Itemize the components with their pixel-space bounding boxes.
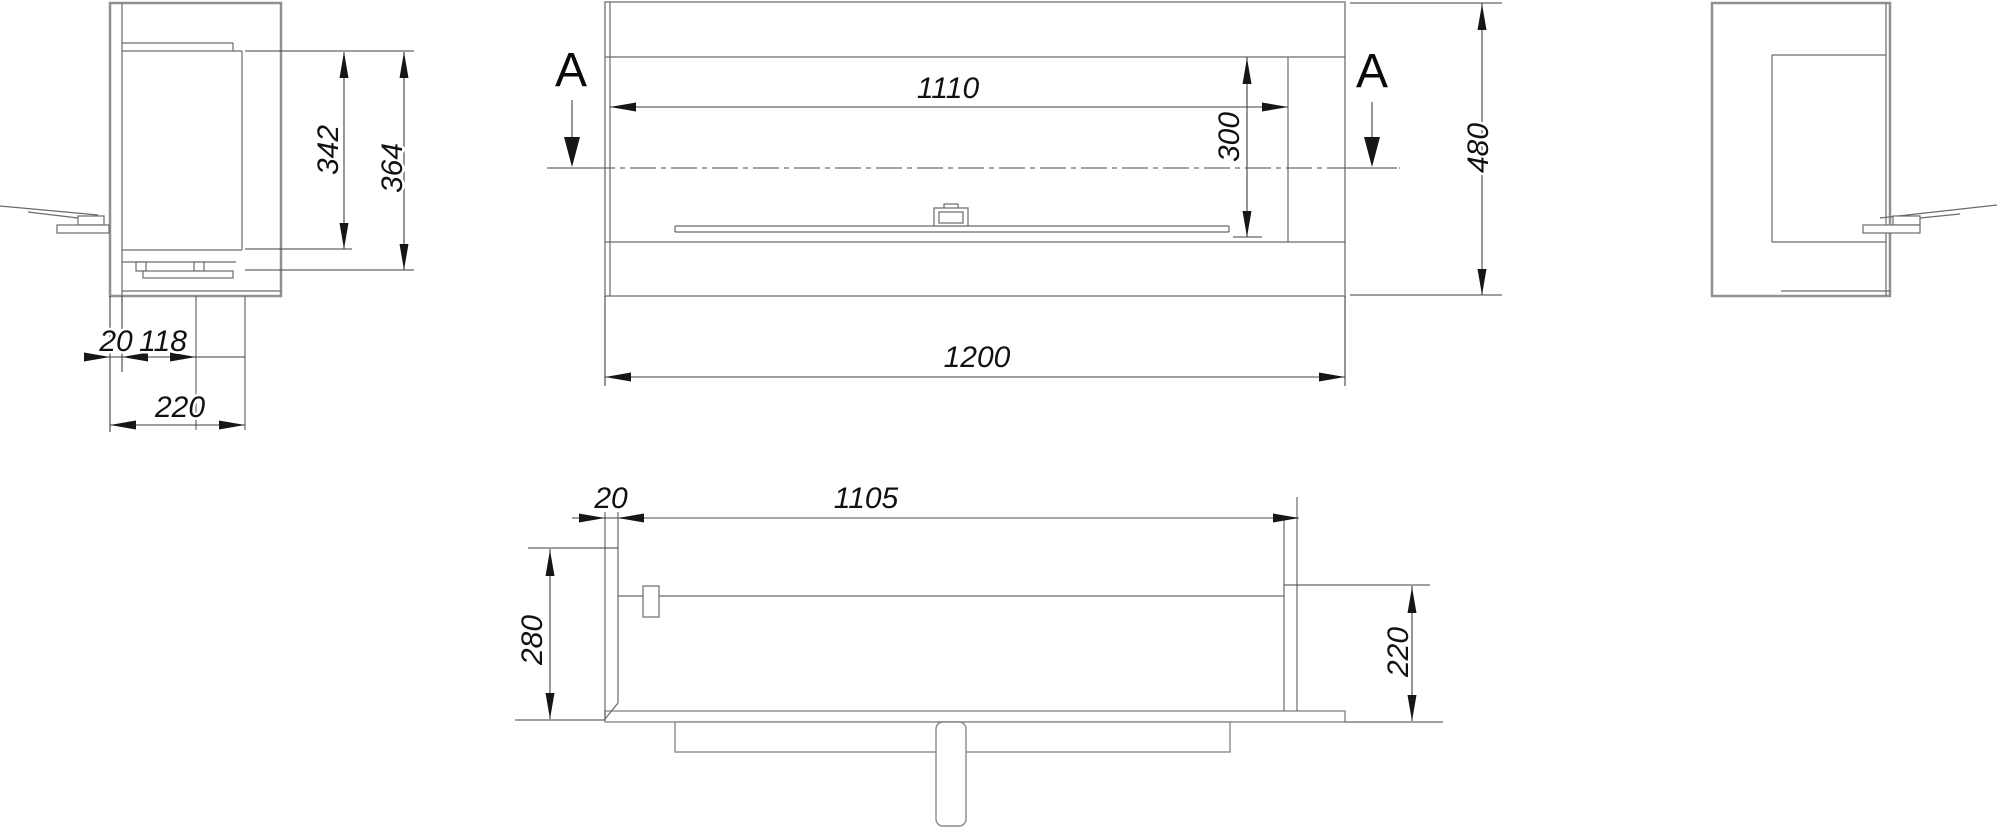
dim-total-width: 1200 [605,296,1345,386]
body-outline [1712,3,1890,296]
dim-label-300: 300 [1213,112,1246,162]
dim-label-20-top: 20 [593,482,628,515]
dim-label-1110: 1110 [917,72,980,105]
drain-pipe [936,722,966,826]
latch-bar [1863,225,1920,233]
dim-label-118: 118 [139,325,187,358]
side-view-right [1712,3,1997,296]
arrowhead [546,550,555,576]
igniter-port [643,586,659,617]
dim-opening-width: 1110 [610,72,1288,112]
dim-label-342: 342 [312,125,345,175]
dim-opening-height: 300 [1213,57,1262,237]
dim-label-1105: 1105 [834,482,899,515]
dim-label-1200: 1200 [944,341,1011,374]
arrowhead [1262,103,1288,112]
dim-label-20-side: 20 [98,325,133,358]
arrowhead [1408,587,1417,613]
arrowhead [1408,695,1417,721]
dim-label-220-side: 220 [154,391,205,424]
drawing-svg: 342 364 20 118 220 [0,0,2000,833]
burner-tray [143,271,233,278]
tray-clip [136,262,146,271]
body-outline [110,3,281,296]
tray-clip [194,262,204,271]
section-label-a-left: A [555,44,587,97]
fireplace-body-top [605,497,1345,826]
dim-wall-and-width-top: 20 1105 [572,482,1299,523]
arrowhead [340,52,349,78]
dim-base-depth-side: 220 [110,391,245,430]
arrowhead [219,421,245,430]
dim-label-280: 280 [516,615,549,666]
latch-bracket [1893,216,1920,225]
damper-rod [0,206,98,215]
regulator-inner [939,212,963,223]
section-arrowhead [1364,137,1380,167]
arrowhead [110,421,136,430]
section-label-a-right: A [1356,45,1388,98]
arrowhead [1243,211,1252,237]
section-marker-right: A [1349,45,1397,168]
technical-drawing-canvas: 342 364 20 118 220 [0,0,2000,833]
latch-bracket [78,216,104,225]
arrowhead [610,103,636,112]
arrowhead [1478,269,1487,295]
dim-label-364: 364 [376,143,409,193]
front-view: A A 1110 300 [547,2,1502,386]
arrowhead [605,373,631,382]
section-marker-left: A [547,44,597,168]
side-view-left: 342 364 20 118 220 [0,3,414,432]
section-arrowhead [564,137,580,167]
dim-base-depth-top: 220 [1284,585,1443,722]
fireplace-body-side-right [1712,3,1997,296]
arrowhead [1273,514,1299,523]
arrowhead [1478,4,1487,30]
dim-label-480: 480 [1462,123,1495,173]
fireplace-body-front [548,2,1400,296]
dim-label-220-top: 220 [1382,627,1415,678]
dim-total-depth-top: 280 [515,548,618,720]
arrowhead [1243,58,1252,84]
arrowhead [340,223,349,249]
top-view: 20 1105 280 220 [515,482,1443,826]
arrowhead [1319,373,1345,382]
arrowhead [546,693,555,719]
latch-bar [57,225,109,233]
fireplace-body-side-left [0,3,281,430]
base-bar [605,711,1345,722]
arrowhead [400,52,409,78]
arrowhead [400,244,409,270]
